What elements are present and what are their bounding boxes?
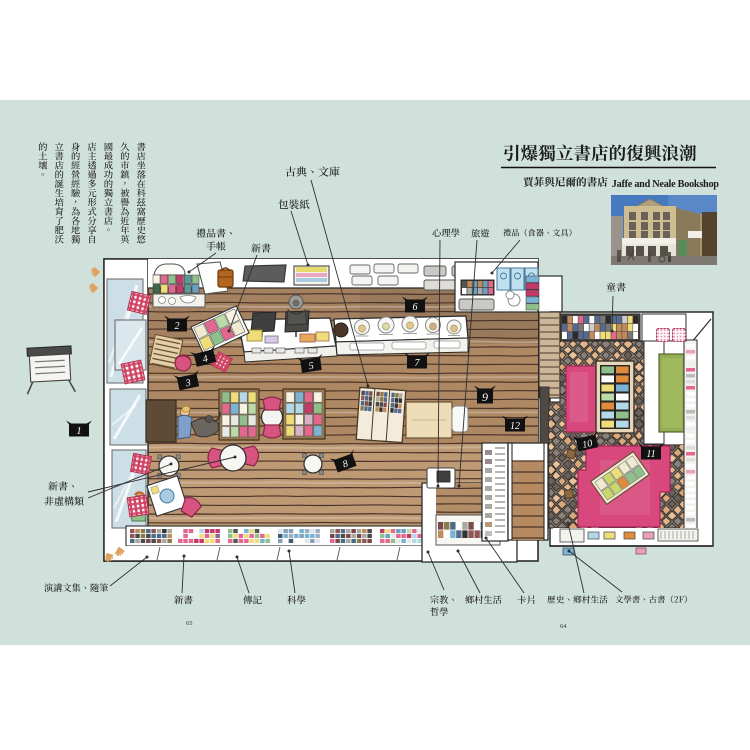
svg-text:6: 6	[413, 302, 418, 313]
svg-text:1: 1	[77, 426, 82, 437]
svg-text:65: 65	[186, 620, 193, 627]
svg-text:11: 11	[646, 449, 655, 460]
svg-text:Jaffe and Neale Bookshop: Jaffe and Neale Bookshop	[612, 179, 720, 190]
svg-text:2: 2	[175, 321, 180, 332]
svg-text:12: 12	[510, 421, 520, 432]
svg-text:64: 64	[560, 623, 567, 630]
svg-text:9: 9	[482, 390, 488, 404]
